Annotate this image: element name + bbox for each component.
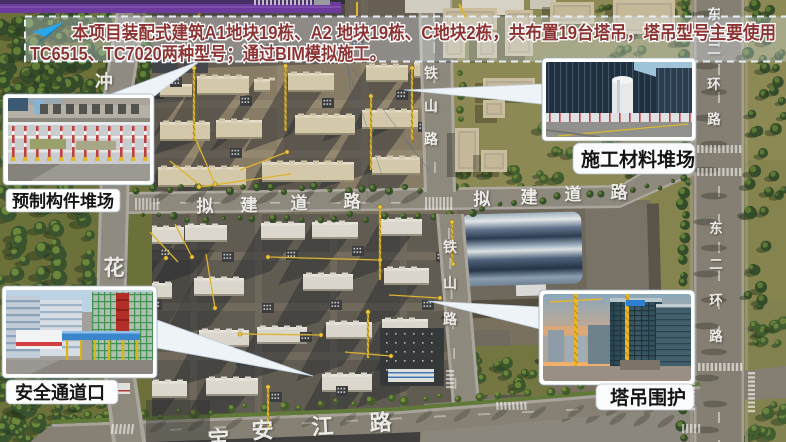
svg-text:安全通道口: 安全通道口 <box>15 382 105 403</box>
svg-text:施工材料堆场: 施工材料堆场 <box>581 148 695 171</box>
svg-text:本项目装配式建筑A1地块19栋、A2 地块19栋、C地块2栋: 本项目装配式建筑A1地块19栋、A2 地块19栋、C地块2栋，共布置19台塔吊，… <box>72 22 776 43</box>
svg-text:塔吊围护: 塔吊围护 <box>610 386 686 409</box>
svg-text:预制构件堆场: 预制构件堆场 <box>12 191 114 211</box>
svg-text:TC6515、TC7020两种型号；通过BIM模拟施工。: TC6515、TC7020两种型号；通过BIM模拟施工。 <box>30 43 386 64</box>
